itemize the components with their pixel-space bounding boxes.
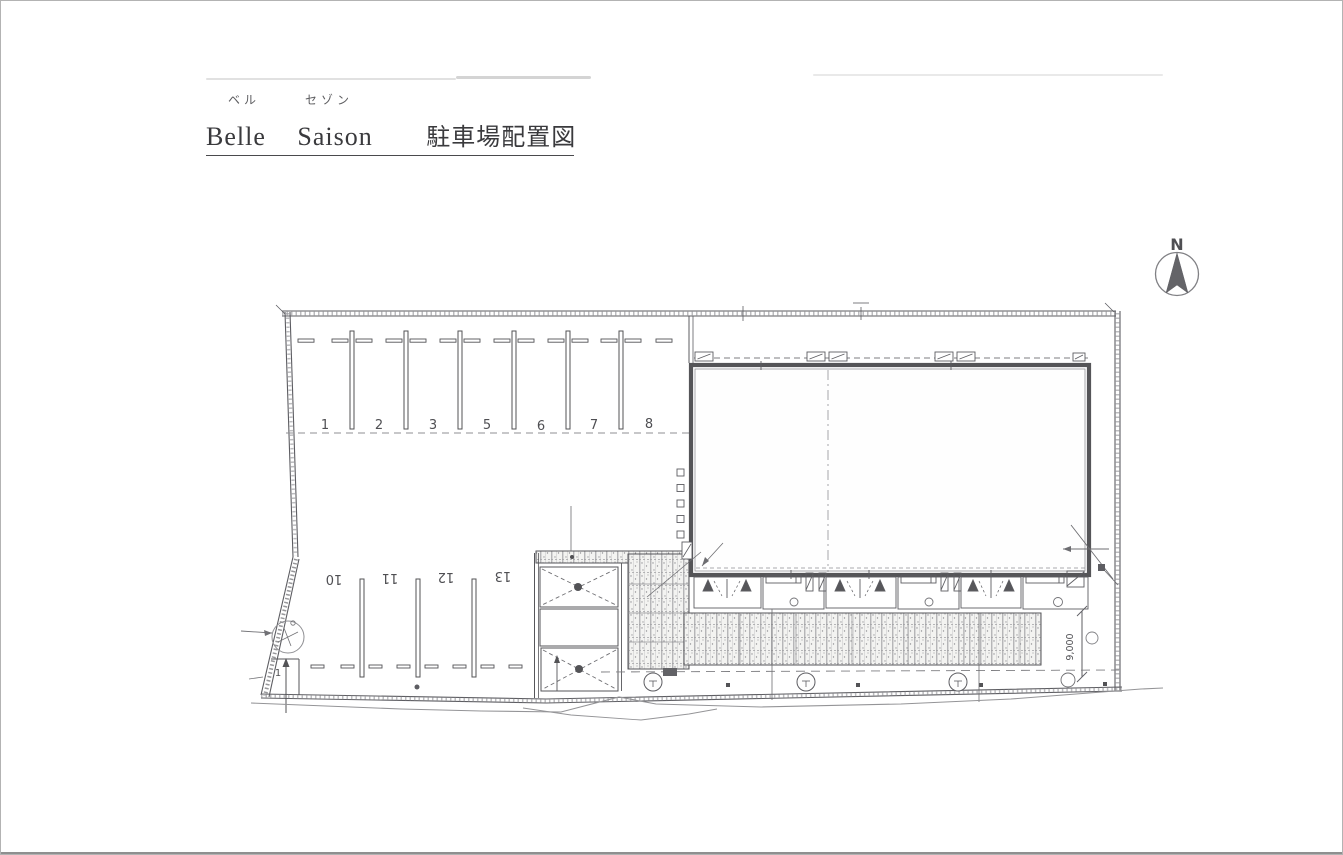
entrance-porches [694, 571, 1088, 609]
equipment-box [695, 352, 713, 361]
corner-space-label: 1 [275, 668, 281, 679]
scan-bottom-edge [1, 852, 1342, 854]
parking-divider [350, 331, 354, 429]
planter-box [541, 648, 618, 691]
parking-space-number: 1 [321, 418, 329, 433]
porch-unit [898, 573, 961, 609]
post-mark [979, 683, 983, 687]
court-gap-box [540, 609, 618, 646]
parking-space-number: 2 [375, 418, 383, 433]
equipment-box [807, 352, 825, 361]
parking-space-number: 11 [382, 570, 399, 585]
small-tag [663, 668, 677, 676]
parking-divider [472, 579, 476, 677]
site-plan-drawing: N [1, 1, 1343, 855]
parking-space-number: 5 [483, 418, 491, 433]
entrance-triangle-icon [835, 580, 845, 591]
parking-divider [566, 331, 570, 429]
manhole-icon [1061, 673, 1075, 687]
entrance-triangle-icon [1004, 580, 1014, 591]
manhole-icon [949, 673, 967, 691]
post-mark [726, 683, 730, 687]
planter-box [540, 567, 618, 607]
parking-divider [458, 331, 462, 429]
parking-divider [619, 331, 623, 429]
equipment-row [694, 352, 1088, 361]
entrance-triangle-icon [703, 580, 713, 591]
parking-space-number: 12 [438, 569, 455, 584]
north-label: N [1170, 235, 1183, 254]
porch-unit [1023, 571, 1088, 609]
manhole-icon [644, 673, 662, 691]
lower-parking-area: 10 11 12 13 [311, 568, 522, 677]
north-arrow-icon: N [1156, 235, 1199, 296]
parking-divider [360, 579, 364, 677]
entry-unit [961, 577, 1021, 608]
parking-divider [416, 579, 420, 677]
entry-unit [694, 577, 761, 608]
manhole-icon [797, 673, 815, 691]
entrance-triangle-icon [875, 580, 885, 591]
post-mark [1103, 682, 1107, 686]
parking-space-number: 7 [590, 418, 598, 433]
entry-unit [826, 577, 896, 608]
post-mark [856, 683, 860, 687]
parking-divider [404, 331, 408, 429]
parking-space-number: 8 [645, 417, 653, 432]
meter-boxes [677, 469, 684, 538]
corner-area: 1 [241, 621, 304, 713]
equipment-box [957, 352, 975, 361]
porch-unit [763, 573, 826, 609]
equipment-box [935, 352, 953, 361]
survey-point [415, 685, 420, 690]
entrance-triangle-icon [968, 580, 978, 591]
parking-space-number: 3 [429, 418, 437, 433]
upper-parking-area: 1 2 3 5 6 7 8 [298, 331, 672, 434]
parking-space-number: 13 [495, 568, 512, 583]
dimension-label: 9,000 [1065, 633, 1076, 660]
entrance-triangle-icon [741, 580, 751, 591]
parking-space-number: 6 [537, 419, 545, 434]
equipment-box [829, 352, 847, 361]
parking-space-number: 10 [326, 571, 343, 586]
parking-divider [512, 331, 516, 429]
scanned-drawing-page: ベル セゾン Belle Saison 駐車場配置図 [0, 0, 1343, 855]
